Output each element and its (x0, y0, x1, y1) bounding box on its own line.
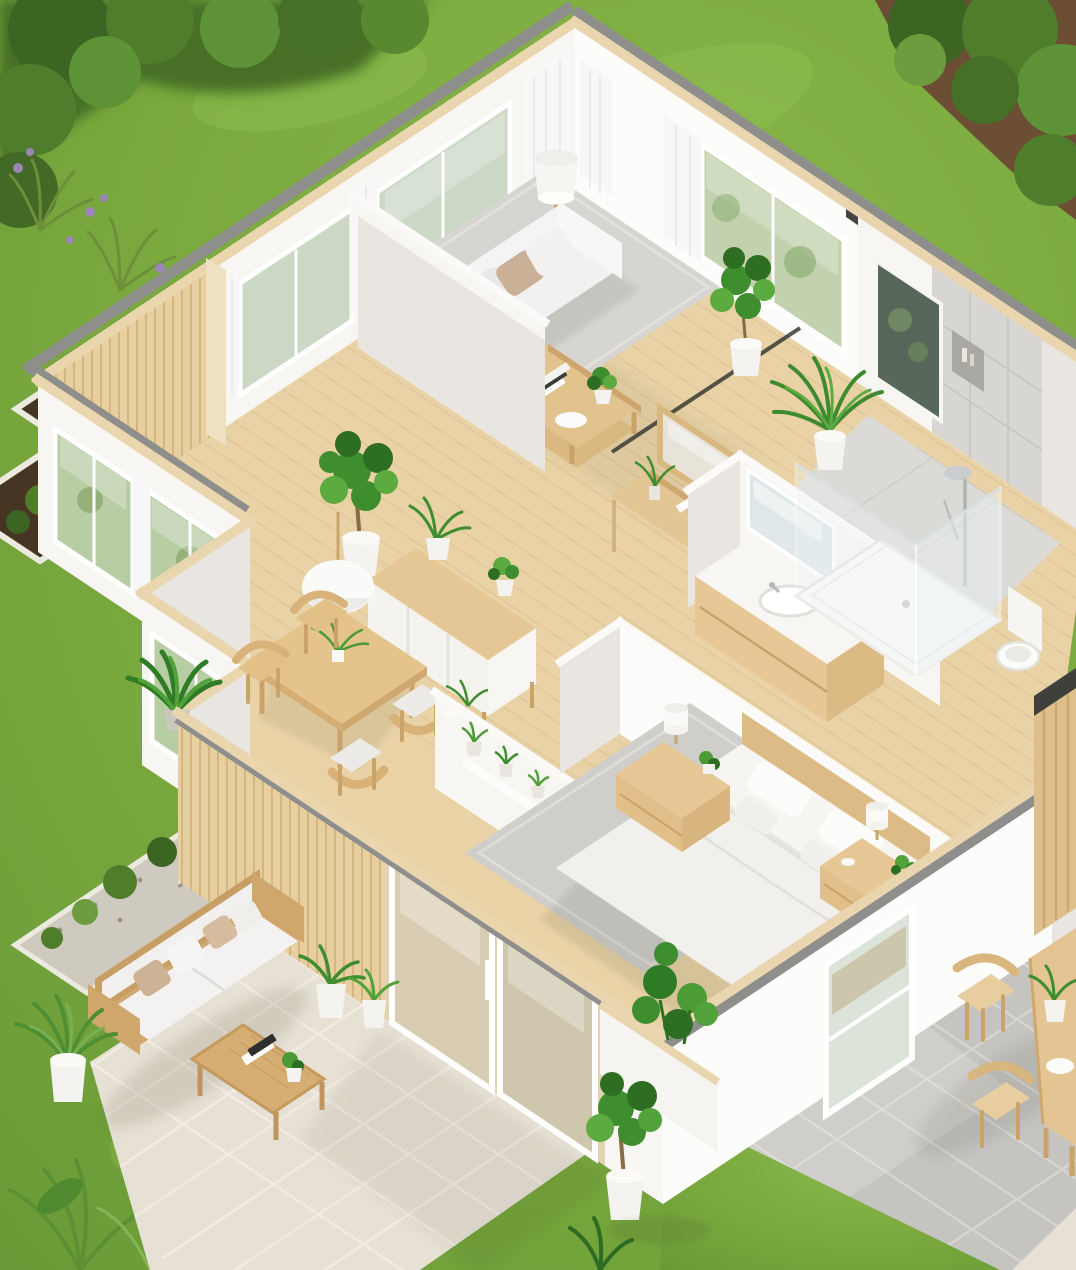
curtain (133, 470, 150, 603)
corner-post (206, 258, 226, 446)
east-wall-stub (1042, 334, 1076, 529)
curtain (580, 58, 612, 196)
curtain (664, 114, 702, 262)
plate (1046, 1058, 1074, 1074)
wood-column (1034, 668, 1076, 936)
isometric-house-render (0, 0, 1076, 1270)
tray (555, 412, 587, 428)
